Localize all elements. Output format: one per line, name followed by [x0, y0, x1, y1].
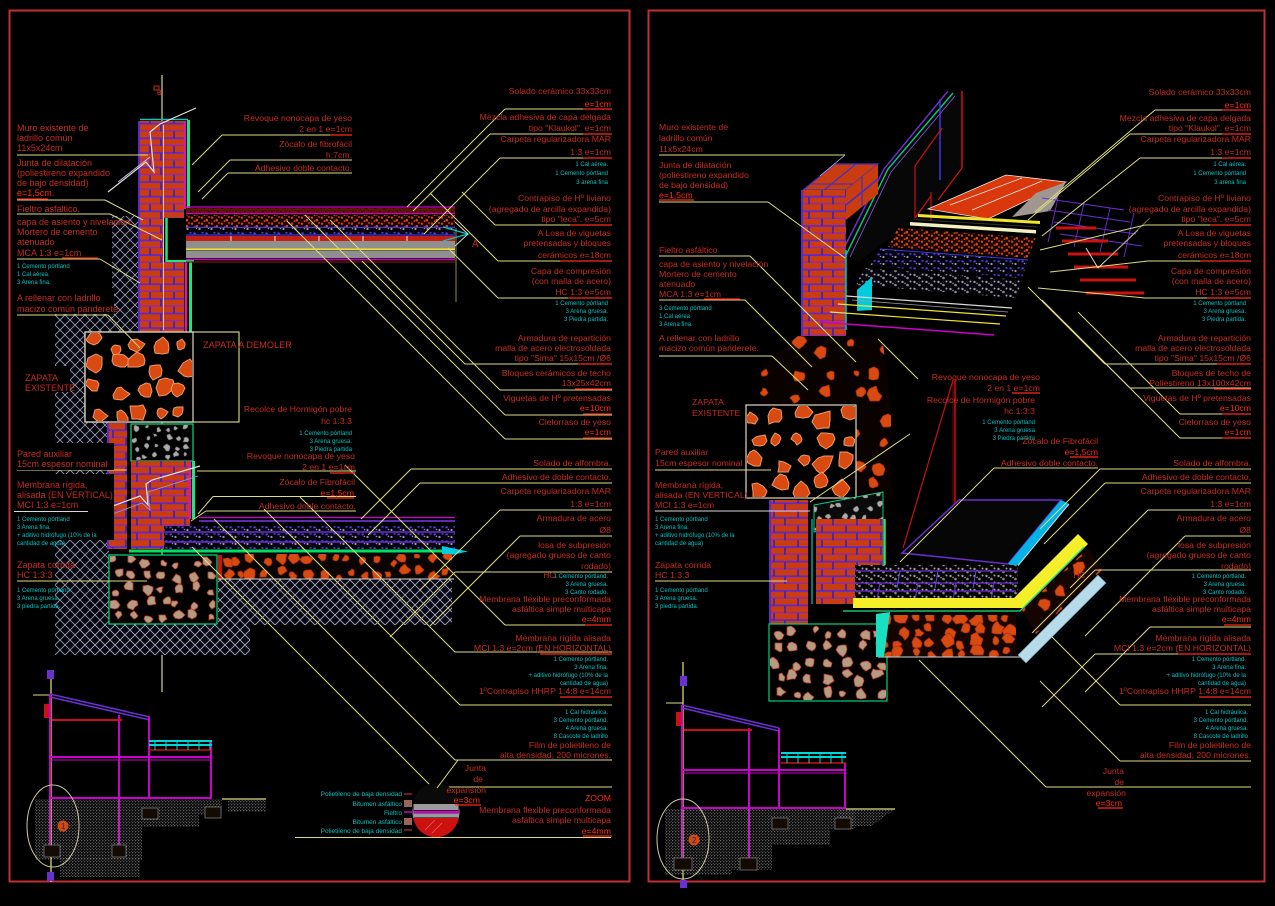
svg-text:15cm espesor nominal: 15cm espesor nominal [17, 459, 108, 469]
svg-text:pretensadas y bloques: pretensadas y bloques [1164, 238, 1252, 248]
svg-text:MCI 1:3 e=2cm (EN HORIZONTAL: MCI 1:3 e=2cm (EN HORIZONTAL) [474, 643, 611, 653]
svg-text:alta densidad, 200 micrones.: alta densidad, 200 micrones. [1140, 750, 1251, 760]
svg-text:Zócalo de Fibrofácil: Zócalo de Fibrofácil [279, 477, 355, 487]
svg-text:Membrana rígida,: Membrana rígida, [17, 480, 88, 490]
svg-text:h:7cm.: h:7cm. [326, 150, 352, 160]
svg-text:Revoque nonocapa de yeso: Revoque nonocapa de yeso [932, 372, 1040, 382]
svg-text:2 en 1 e=1cm: 2 en 1 e=1cm [302, 462, 355, 472]
svg-text:macizo común panderete.: macizo común panderete. [659, 343, 759, 353]
svg-text:e=1,5cm: e=1,5cm [1064, 447, 1098, 457]
svg-text:rodado): rodado) [581, 561, 611, 571]
svg-text:Fieltro asfáltico.: Fieltro asfáltico. [17, 204, 80, 214]
svg-text:de: de [1114, 777, 1124, 787]
svg-text:Film de polietileno de: Film de polietileno de [529, 740, 611, 750]
svg-text:3 Arena gruesa.: 3 Arena gruesa. [310, 439, 353, 445]
svg-text:15cm espesor nominal: 15cm espesor nominal [655, 458, 742, 468]
svg-text:e=1,5cm: e=1,5cm [320, 488, 354, 498]
svg-text:(agregado grueso de canto: (agregado grueso de canto [507, 550, 611, 560]
svg-text:tipo "Sima" 15x15cm /Ø6: tipo "Sima" 15x15cm /Ø6 [515, 353, 612, 363]
svg-text:Pared auxiliar: Pared auxiliar [17, 449, 72, 459]
svg-text:e=1cm: e=1cm [585, 427, 611, 437]
svg-text:2 en 1 e=1cm: 2 en 1 e=1cm [299, 124, 352, 134]
svg-text:3 Arena gruesa.: 3 Arena gruesa. [566, 582, 609, 588]
svg-text:HC: HC [1073, 571, 1085, 580]
svg-text:Zócalo de fibrofácil: Zócalo de fibrofácil [279, 139, 352, 149]
svg-text:Membrana flexible preconformad: Membrana flexible preconformada [1119, 594, 1251, 604]
svg-text:Mezcla adhesiva de capa delgad: Mezcla adhesiva de capa delgada [480, 112, 612, 122]
svg-text:e=1cm: e=1cm [1225, 427, 1251, 437]
svg-text:Fieltro: Fieltro [384, 810, 402, 817]
svg-text:capa de asiento y nivelación: capa de asiento y nivelación [659, 259, 768, 269]
svg-text:expansión: expansión [1086, 788, 1126, 798]
svg-text:3 Piedra partida.: 3 Piedra partida. [564, 317, 608, 323]
svg-text:3 Arena gruesa: 3 Arena gruesa [994, 428, 1035, 434]
svg-text:EXISTENTE: EXISTENTE [25, 383, 75, 393]
svg-text:1ºContrapiso HHRP 1:4:8 e=1: 1ºContrapiso HHRP 1:4:8 e=14cm [479, 686, 611, 696]
svg-text:Poliestireno 13x100x42cm: Poliestireno 13x100x42cm [1149, 378, 1251, 388]
svg-text:4 Arena gruesa.: 4 Arena gruesa. [1206, 726, 1249, 732]
svg-text:Recolce de Hormigón pobre: Recolce de Hormigón pobre [244, 404, 352, 414]
svg-text:Ø8: Ø8 [1239, 525, 1251, 535]
svg-text:(agregado grueso de canto: (agregado grueso de canto [1147, 550, 1251, 560]
svg-text:3 Arena fina.: 3 Arena fina. [655, 525, 689, 531]
svg-text:Junta: Junta [465, 763, 486, 773]
svg-text:Cielorraso de yeso: Cielorraso de yeso [1179, 417, 1252, 427]
svg-text:Membrana flexible preconformad: Membrana flexible preconformada [479, 594, 611, 604]
svg-text:Revoque nonocapa de yeso: Revoque nonocapa de yeso [244, 113, 352, 123]
svg-text:losa de subpresión: losa de subpresión [538, 540, 611, 550]
svg-text:de bajo densidad): de bajo densidad) [17, 178, 89, 188]
svg-text:3 Arena fina.: 3 Arena fina. [574, 665, 608, 671]
svg-text:3 Arena fina.: 3 Arena fina. [17, 525, 51, 531]
svg-text:Polietileno de baja densidad: Polietileno de baja densidad [321, 828, 403, 835]
svg-text:3 Arena fina.: 3 Arena fina. [17, 280, 51, 286]
svg-text:Contrapiso de Hº liviano: Contrapiso de Hº liviano [518, 193, 611, 203]
svg-text:1 Cal hidráulica.: 1 Cal hidráulica. [1205, 710, 1248, 716]
svg-text:cerámicos e=18cm: cerámicos e=18cm [538, 250, 611, 260]
svg-text:ZAPATA A DEMOLER: ZAPATA A DEMOLER [203, 340, 292, 350]
svg-text:3 Cemento pórtland.: 3 Cemento pórtland. [554, 718, 609, 724]
svg-text:1 Cemento pórtland.: 1 Cemento pórtland. [554, 574, 609, 580]
svg-text:3 Cemento pórtland: 3 Cemento pórtland [659, 306, 712, 312]
svg-text:Pared auxiliar: Pared auxiliar [655, 447, 708, 457]
svg-text:1 Cal hidráulica.: 1 Cal hidráulica. [565, 710, 608, 716]
svg-text:losa de subpresión: losa de subpresión [1178, 540, 1251, 550]
svg-text:1 Cal aérea.: 1 Cal aérea. [17, 272, 50, 278]
svg-text:Solado cerámico 33x33cm: Solado cerámico 33x33cm [1149, 87, 1251, 97]
svg-text:MCI 1:3 e=2cm (EN HORIZONTAL: MCI 1:3 e=2cm (EN HORIZONTAL) [1114, 643, 1251, 653]
svg-text:cerámicos e=18cm: cerámicos e=18cm [1178, 250, 1251, 260]
svg-text:(con malla de acero): (con malla de acero) [532, 276, 611, 286]
svg-text:Ø8: Ø8 [599, 525, 611, 535]
svg-text:1:3 e=1cm: 1:3 e=1cm [570, 147, 611, 157]
svg-text:e=4mm: e=4mm [1222, 614, 1251, 624]
svg-text:Adhesivo doble contacto.: Adhesivo doble contacto. [259, 501, 356, 511]
svg-text:alisada (EN VERTICAL).: alisada (EN VERTICAL). [655, 490, 750, 500]
svg-text:3 Arena fina.: 3 Arena fina. [659, 322, 693, 328]
svg-text:Adhesivo de doble contacto.: Adhesivo de doble contacto. [502, 472, 611, 482]
svg-text:atenuado: atenuado [659, 279, 695, 289]
svg-text:Viguetas de Hº pretensadas: Viguetas de Hº pretensadas [1143, 393, 1251, 403]
svg-text:1 Cal aérea: 1 Cal aérea [659, 314, 691, 320]
svg-text:1 Cemento pórtland: 1 Cemento pórtland [17, 588, 70, 594]
svg-text:Mezcla adhesiva de capa delgad: Mezcla adhesiva de capa delgada [1120, 113, 1252, 123]
svg-text:Armadura de repartición: Armadura de repartición [518, 333, 611, 343]
svg-text:1 Cal aérea.: 1 Cal aérea. [1213, 162, 1246, 168]
svg-text:Bitumen asfáltico: Bitumen asfáltico [353, 819, 403, 826]
svg-text:Adhesivo doble contacto.: Adhesivo doble contacto. [1001, 458, 1098, 468]
svg-text:Cielorraso de yeso: Cielorraso de yeso [539, 417, 612, 427]
svg-text:(agregado de arcilla expandida: (agregado de arcilla expandida) [489, 204, 611, 214]
svg-text:Adhesivo de doble contacto.: Adhesivo de doble contacto. [1142, 472, 1251, 482]
svg-text:ZAPATA: ZAPATA [25, 373, 58, 383]
svg-text:3 Arena gruesa.: 3 Arena gruesa. [566, 309, 609, 315]
svg-text:Bitumen asfáltico: Bitumen asfáltico [353, 801, 403, 808]
svg-text:Solado cerámico 33x33cm: Solado cerámico 33x33cm [509, 86, 611, 96]
svg-text:Carpeta regularizadora MAR: Carpeta regularizadora MAR [500, 486, 611, 496]
svg-text:hc 1:3:3: hc 1:3:3 [1004, 406, 1035, 416]
svg-text:MCA 1:3 e=1cm: MCA 1:3 e=1cm [659, 289, 721, 299]
svg-text:4 Arena gruesa.: 4 Arena gruesa. [566, 726, 609, 732]
svg-text:e=3cm: e=3cm [1096, 798, 1122, 808]
svg-text:tipo "leca". e=5cm: tipo "leca". e=5cm [1181, 214, 1251, 224]
svg-text:rodado): rodado) [1221, 561, 1251, 571]
svg-text:3 piedra partida.: 3 piedra partida. [655, 604, 699, 610]
svg-text:Armadura de acero: Armadura de acero [1177, 513, 1252, 523]
svg-text:1 Cemento pórtland: 1 Cemento pórtland [982, 420, 1035, 426]
svg-text:Polietileno de baja densidad: Polietileno de baja densidad [321, 791, 403, 798]
svg-text:11x5x24cm: 11x5x24cm [659, 144, 703, 154]
svg-text:e=3cm: e=3cm [454, 795, 480, 805]
svg-text:Bloques cerámicos de techo: Bloques cerámicos de techo [502, 368, 611, 378]
svg-text:Membrana rígida alisada: Membrana rígida alisada [515, 633, 611, 643]
svg-text:expansión: expansión [446, 785, 486, 795]
svg-text:de bajo densidad): de bajo densidad) [659, 180, 728, 190]
svg-text:3 arena fina: 3 arena fina [1214, 180, 1246, 186]
svg-text:B: B [157, 90, 162, 97]
svg-text:Solado de alfombra.: Solado de alfombra. [533, 458, 611, 468]
svg-text:hc 1:3:3: hc 1:3:3 [321, 416, 352, 426]
svg-text:A Losa de viguetas: A Losa de viguetas [1178, 228, 1252, 238]
svg-text:1 Cemento pórtland: 1 Cemento pórtland [655, 588, 708, 594]
svg-text:(poliestireno expandido: (poliestireno expandido [659, 170, 749, 180]
svg-text:Solado de alfombra.: Solado de alfombra. [1173, 458, 1251, 468]
svg-text:1ºContrapiso HHRP 1:4:8 e=1: 1ºContrapiso HHRP 1:4:8 e=14cm [1119, 686, 1251, 696]
svg-text:3 arena fina: 3 arena fina [576, 180, 608, 186]
svg-text:3 Arena gruesa.: 3 Arena gruesa. [17, 596, 60, 602]
svg-text:tipo "Klaukol". e=1cm: tipo "Klaukol". e=1cm [529, 123, 611, 133]
svg-text:MCA 1:3 e=1cm: MCA 1:3 e=1cm [17, 248, 81, 258]
svg-text:(agregado de arcilla expandida: (agregado de arcilla expandida) [1129, 204, 1251, 214]
svg-text:HC 1:3 e=5cm: HC 1:3 e=5cm [1195, 287, 1251, 297]
svg-text:11x5x24cm: 11x5x24cm [17, 143, 62, 153]
svg-text:e=1cm: e=1cm [1225, 100, 1251, 110]
svg-text:Muro existente de: Muro existente de [17, 123, 89, 133]
svg-text:1 Cemento pórtland.: 1 Cemento pórtland. [554, 657, 609, 663]
svg-text:e=1,5cm.: e=1,5cm. [17, 188, 54, 198]
svg-text:1 Cemento pórtland: 1 Cemento pórtland [17, 264, 70, 270]
svg-text:capa de asiento y nivelación: capa de asiento y nivelación [17, 217, 130, 227]
svg-text:ZAPATA: ZAPATA [692, 397, 724, 407]
svg-text:alisada (EN VERTICAL).: alisada (EN VERTICAL). [17, 490, 115, 500]
svg-text:1: 1 [61, 822, 66, 831]
svg-text:Junta: Junta [1103, 766, 1124, 776]
svg-text:1 Cemento pórtland.: 1 Cemento pórtland. [1192, 657, 1247, 663]
svg-text:e=1cm: e=1cm [585, 99, 611, 109]
svg-text:3 Piedra partida.: 3 Piedra partida. [1202, 317, 1246, 323]
svg-text:1 Cemento pórtland.: 1 Cemento pórtland. [1192, 574, 1247, 580]
svg-text:asfáltica simple multicapa: asfáltica simple multicapa [1152, 604, 1251, 614]
svg-text:HC 1:3:3: HC 1:3:3 [17, 570, 53, 580]
svg-text:Adhesivo doble contacto.: Adhesivo doble contacto. [255, 163, 352, 173]
svg-text:Carpeta regularizadora MAR: Carpeta regularizadora MAR [500, 134, 611, 144]
svg-text:1:3 e=1cm: 1:3 e=1cm [1210, 499, 1251, 509]
svg-text:tipo "Klaukol". e=1cm: tipo "Klaukol". e=1cm [1169, 123, 1251, 133]
svg-text:3 Cemento pórtland.: 3 Cemento pórtland. [1194, 718, 1249, 724]
svg-text:1 Cemento pórtland: 1 Cemento pórtland [299, 431, 352, 437]
svg-text:1:3 e=1cm: 1:3 e=1cm [1210, 147, 1251, 157]
svg-text:A rellenar con ladrillo: A rellenar con ladrillo [17, 293, 101, 303]
svg-text:+ aditivo hidrófugo (10% de la: + aditivo hidrófugo (10% de la [528, 673, 608, 679]
svg-text:atenuado: atenuado [17, 237, 55, 247]
svg-text:de: de [473, 774, 483, 784]
svg-text:+ aditivo hidrófugo (10% de la: + aditivo hidrófugo (10% de la [1166, 673, 1246, 679]
svg-text:cantidad de agua): cantidad de agua) [655, 541, 703, 547]
svg-text:Muro existente de: Muro existente de [659, 122, 728, 132]
svg-text:1 Cemento pórtland: 1 Cemento pórtland [1193, 301, 1246, 307]
svg-text:3 piedra partida.: 3 piedra partida. [17, 604, 61, 610]
svg-text:tipo "leca". e=5cm: tipo "leca". e=5cm [541, 214, 611, 224]
svg-text:A Losa de viguetas: A Losa de viguetas [538, 228, 612, 238]
svg-text:Carpeta regularizadora MAR: Carpeta regularizadora MAR [1140, 486, 1251, 496]
svg-text:Film de polietileno de: Film de polietileno de [1169, 740, 1251, 750]
svg-text:pretensadas y bloques: pretensadas y bloques [524, 238, 612, 248]
svg-text:3 Arena gruesa.: 3 Arena gruesa. [1204, 309, 1247, 315]
svg-text:e=4mm: e=4mm [582, 826, 611, 836]
svg-text:1:3 e=1cm: 1:3 e=1cm [570, 499, 611, 509]
svg-text:3 Arena gruesa.: 3 Arena gruesa. [655, 596, 698, 602]
svg-text:Armadura de acero: Armadura de acero [537, 513, 612, 523]
svg-text:asfáltica simple multicapa: asfáltica simple multicapa [512, 604, 611, 614]
svg-text:1 Cemento pórtland: 1 Cemento pórtland [1193, 171, 1246, 177]
svg-text:Revoque nonocapa de yeso: Revoque nonocapa de yeso [247, 451, 355, 461]
svg-text:+ aditivo hidrófugo (10% de la: + aditivo hidrófugo (10% de la [17, 533, 97, 539]
svg-text:1 Cemento pórtland: 1 Cemento pórtland [555, 301, 608, 307]
svg-text:ZOOM: ZOOM [585, 793, 611, 803]
svg-text:EXISTENTE: EXISTENTE [692, 408, 740, 418]
svg-text:Fieltro asfáltico: Fieltro asfáltico [659, 245, 718, 255]
svg-text:Mortero de cemento: Mortero de cemento [17, 227, 98, 237]
svg-text:malla de acero electrosoldada: malla de acero electrosoldada [495, 343, 611, 353]
svg-text:Recolce de Hormigón pobre: Recolce de Hormigón pobre [927, 395, 1035, 405]
svg-text:Membrana flexible preconformad: Membrana flexible preconformada [479, 805, 611, 815]
svg-text:macizo común panderete: macizo común panderete [17, 304, 118, 314]
svg-text:MCI 1:3 e=1cm: MCI 1:3 e=1cm [17, 500, 78, 510]
svg-text:Membrana rígida,: Membrana rígida, [655, 480, 723, 490]
svg-text:e=4mm: e=4mm [582, 614, 611, 624]
svg-text:+ aditivo hidrófugo (10% de la: + aditivo hidrófugo (10% de la [655, 533, 735, 539]
svg-text:Zócalo de Fibrofácil: Zócalo de Fibrofácil [1022, 436, 1098, 446]
svg-text:Carpeta regularizadora MAR: Carpeta regularizadora MAR [1140, 134, 1251, 144]
svg-text:HC 1:3:3: HC 1:3:3 [655, 570, 689, 580]
svg-text:2 en 1 e=1cm: 2 en 1 e=1cm [987, 383, 1040, 393]
svg-text:3 Arena gruesa.: 3 Arena gruesa. [1204, 582, 1247, 588]
svg-text:e=10cm: e=10cm [1220, 403, 1251, 413]
svg-text:Contrapiso de Hº liviano: Contrapiso de Hº liviano [1158, 193, 1251, 203]
svg-text:Capa de compresión: Capa de compresión [531, 266, 611, 276]
svg-text:(poliestireno expandido: (poliestireno expandido [17, 168, 110, 178]
svg-text:Capa de compresión: Capa de compresión [1171, 266, 1251, 276]
svg-text:malla de acero electrosoldada: malla de acero electrosoldada [1135, 343, 1251, 353]
svg-text:alta densidad, 200 micrones.: alta densidad, 200 micrones. [500, 750, 611, 760]
svg-text:1 Cemento pórtland: 1 Cemento pórtland [17, 517, 70, 523]
svg-text:Junta de dilatación: Junta de dilatación [17, 158, 92, 168]
svg-text:Viguetas de Hº pretensadas: Viguetas de Hº pretensadas [503, 393, 611, 403]
svg-text:e=10cm: e=10cm [580, 403, 611, 413]
svg-text:Mortero de cemento: Mortero de cemento [659, 269, 737, 279]
svg-text:Bloques de techo de: Bloques de techo de [1172, 368, 1251, 378]
svg-text:13x25x42cm: 13x25x42cm [562, 378, 611, 388]
svg-text:asfáltica simple multicapa: asfáltica simple multicapa [512, 815, 611, 825]
svg-text:1 Cemento pórtland: 1 Cemento pórtland [655, 517, 708, 523]
svg-text:ladrillo común: ladrillo común [17, 133, 73, 143]
svg-text:Armadura de repartición: Armadura de repartición [1158, 333, 1251, 343]
svg-text:2: 2 [692, 836, 697, 845]
svg-text:Junta de dilatación: Junta de dilatación [659, 160, 732, 170]
svg-text:1 Cal aérea.: 1 Cal aérea. [575, 162, 608, 168]
svg-text:MCI 1:3 e=1cm: MCI 1:3 e=1cm [655, 500, 714, 510]
svg-text:HC 1:3 e=5cm: HC 1:3 e=5cm [555, 287, 611, 297]
svg-text:A rellenar con ladrillo: A rellenar con ladrillo [659, 333, 740, 343]
svg-text:Zapata corrida: Zapata corrida [17, 560, 75, 570]
svg-text:cantidad de agua): cantidad de agua) [17, 541, 65, 547]
svg-text:(con malla de acero): (con malla de acero) [1172, 276, 1251, 286]
svg-text:3 Arena fina.: 3 Arena fina. [1212, 665, 1246, 671]
svg-text:ladrillo común: ladrillo común [659, 133, 713, 143]
svg-text:Membrana rígida alisada: Membrana rígida alisada [1155, 633, 1251, 643]
svg-text:tipo "Sima" 15x15cm /Ø6: tipo "Sima" 15x15cm /Ø6 [1155, 353, 1252, 363]
svg-text:e=1,5cm: e=1,5cm [659, 190, 693, 200]
svg-text:Zapata corrida: Zapata corrida [655, 560, 711, 570]
svg-text:1 Cemento pórtland: 1 Cemento pórtland [555, 171, 608, 177]
